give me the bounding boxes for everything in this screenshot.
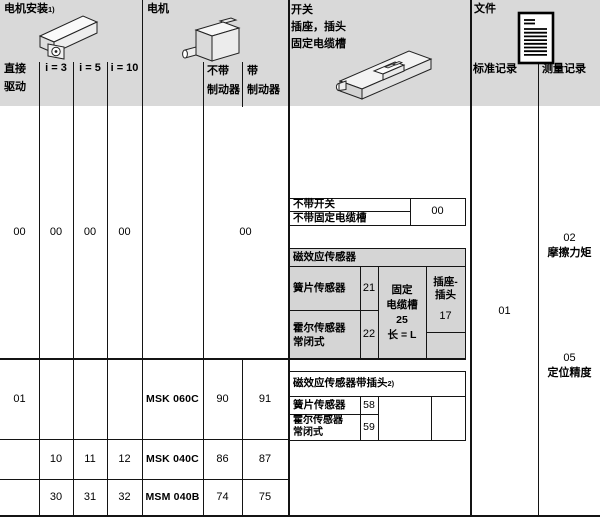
cell-brake-row2: 91 <box>242 359 288 439</box>
cell-motor-type-row2: MSK 060C <box>142 359 203 439</box>
label-hall-sensor-plug: 霍尔传感器 常闭式 <box>293 414 363 440</box>
col-header-direct-drive: 直接 驱动 <box>4 59 38 97</box>
motor-icon <box>178 17 248 67</box>
divider <box>465 198 466 226</box>
cell-i10-row1: 00 <box>107 107 142 358</box>
divider <box>426 332 466 333</box>
cell-i3-row3: 10 <box>39 439 73 479</box>
document-icon <box>516 11 558 67</box>
gearbox-mount-icon <box>33 10 107 62</box>
measure-label: 定位精度 <box>548 366 592 381</box>
divider <box>378 396 379 441</box>
col-header-standard-record: 标准记录 <box>473 62 533 77</box>
linear-module-icon <box>335 46 443 102</box>
cell-motor-code-row1: 00 <box>203 107 288 358</box>
divider <box>465 248 466 359</box>
socket-plug-label: 插座- 插头 <box>433 276 458 302</box>
label-no-cable-duct: 不带固定电缆槽 <box>293 211 408 225</box>
col-header-measure-record: 测量记录 <box>542 62 600 77</box>
cell-i3-row4: 30 <box>39 479 73 516</box>
cell-motor-type-row3: MSK 040C <box>142 439 203 479</box>
cell-reed-sensor-plug-code: 58 <box>360 396 378 414</box>
cell-i10-row3: 12 <box>107 439 142 479</box>
catalog-order-table: 电机安装1) 直接 驱动 i = 3 i = 5 i = 10 电机 不带 制动… <box>0 0 600 520</box>
cell-standard-record-code: 01 <box>471 107 538 516</box>
cell-hall-sensor-code: 22 <box>360 310 378 359</box>
cell-brake-row4: 75 <box>242 479 288 516</box>
cell-measure-friction-torque: 02 摩擦力矩 <box>539 228 600 264</box>
divider <box>242 62 243 107</box>
cell-cable-duct: 固定 电缆槽 25 长 = L <box>378 266 426 359</box>
section-title-motor: 电机 <box>147 2 207 17</box>
cell-no-brake-row3: 86 <box>203 439 242 479</box>
socket-plug-code: 17 <box>439 310 451 323</box>
cell-i3-row1: 00 <box>39 107 73 358</box>
label-reed-sensor-plug: 簧片传感器 <box>293 396 359 414</box>
cell-no-switch-code: 00 <box>410 198 465 225</box>
cell-socket-plug: 插座- 插头 17 <box>426 266 465 332</box>
measure-code: 02 <box>563 231 575 246</box>
cell-i5-row1: 00 <box>73 107 107 358</box>
cell-i5-row4: 31 <box>73 479 107 516</box>
label-hall-sensor: 霍尔传感器 常闭式 <box>293 310 363 359</box>
divider <box>431 396 432 441</box>
cell-no-brake-row2: 90 <box>203 359 242 439</box>
cell-measure-positioning-accuracy: 05 定位精度 <box>539 348 600 384</box>
divider <box>288 440 466 441</box>
cell-hall-sensor-plug-code: 59 <box>360 414 378 440</box>
measure-label: 摩擦力矩 <box>548 246 592 261</box>
cell-motor-type-row4: MSM 040B <box>142 479 203 516</box>
label-reed-sensor: 簧片传感器 <box>293 266 359 310</box>
cell-direct-row2: 01 <box>0 359 39 439</box>
measure-code: 05 <box>563 351 575 366</box>
cell-no-brake-row4: 74 <box>203 479 242 516</box>
col-header-brake: 带 制动器 <box>247 61 287 101</box>
header-magnetic-sensors: 磁效应传感器 <box>293 249 463 265</box>
col-header-no-brake: 不带 制动器 <box>207 61 241 101</box>
cell-i10-row4: 32 <box>107 479 142 516</box>
col-header-i3: i = 3 <box>39 61 73 76</box>
divider <box>465 371 466 441</box>
col-header-i10: i = 10 <box>107 61 142 76</box>
cell-direct-row1: 00 <box>0 107 39 358</box>
cell-reed-sensor-code: 21 <box>360 266 378 310</box>
cell-i5-row3: 11 <box>73 439 107 479</box>
header-magnetic-sensors-with-plug: 磁效应传感器带插头2) <box>293 372 465 395</box>
divider <box>538 62 539 517</box>
cell-brake-row3: 87 <box>242 439 288 479</box>
col-header-i5: i = 5 <box>73 61 107 76</box>
label-no-switch: 不带开关 <box>293 198 408 211</box>
